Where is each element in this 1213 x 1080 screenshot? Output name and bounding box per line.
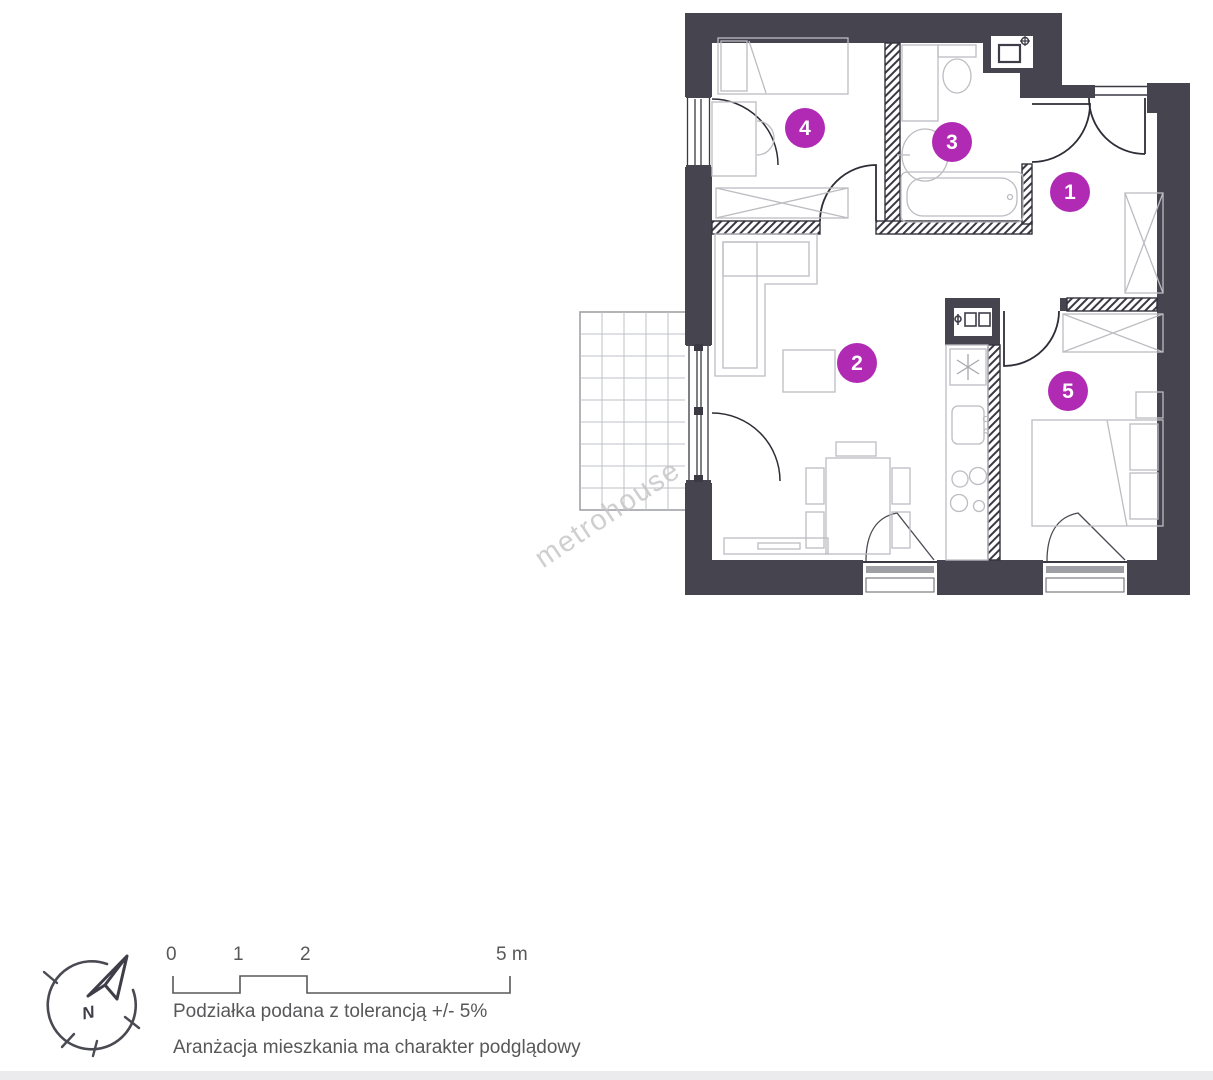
scale-tick-1: 1	[233, 944, 244, 966]
floor-plan-page: N 1 2 3 4 5 metrohouse 0 1 2 5 m Podział…	[0, 0, 1213, 1080]
arrangement-note: Aranżacja mieszkania ma charakter podglą…	[173, 1037, 581, 1059]
desk-chair-icon	[712, 102, 774, 176]
windows	[685, 83, 1147, 595]
compass-rose: N	[44, 956, 139, 1056]
bedroom5-furniture	[1032, 314, 1163, 526]
bathtub-icon	[901, 172, 1023, 222]
entrance-threshold	[1095, 83, 1147, 98]
stove-icon	[951, 468, 987, 512]
swing-window-room4	[712, 99, 778, 165]
window-room4	[685, 94, 712, 169]
scale-tick-2: 2	[300, 944, 311, 966]
scale-tick-end: 5 m	[496, 944, 528, 966]
window-living-room	[863, 560, 937, 595]
room-badge-5: 5	[1048, 371, 1088, 411]
floor-plan-drawing: N	[0, 0, 1213, 1080]
swing-window-bedroom5	[1047, 513, 1125, 561]
door-bathroom	[1032, 104, 1090, 162]
tolerance-note: Podziałka podana z tolerancją +/- 5%	[173, 1001, 487, 1023]
tv-sideboard-icon	[724, 538, 828, 554]
kitchen-sink-icon	[952, 406, 989, 444]
scale-bar	[173, 976, 510, 993]
bed-double-icon	[1032, 420, 1163, 526]
door-entrance	[1089, 98, 1145, 154]
bathroom-cabinet	[902, 45, 938, 121]
kitchen-counter	[946, 345, 988, 560]
bottom-edge-strip	[0, 1071, 1213, 1080]
utility-niche	[991, 36, 1033, 68]
living-room-furniture	[715, 234, 910, 554]
swing-balcony-door	[712, 413, 780, 481]
kitchen-shaft-niche	[954, 308, 992, 336]
bed-single-icon	[718, 38, 848, 94]
corner-sofa-icon	[715, 234, 817, 376]
toilet-icon	[938, 45, 976, 93]
dining-table-icon	[806, 442, 910, 554]
coffee-table-icon	[783, 350, 835, 392]
wardrobe-icon	[1063, 314, 1163, 352]
room-badge-2: 2	[837, 343, 877, 383]
fridge-icon	[950, 349, 986, 385]
scale-tick-0: 0	[166, 944, 177, 966]
door-room5	[1004, 311, 1059, 366]
compass-north-label: N	[80, 1002, 97, 1023]
room-badge-4: 4	[785, 108, 825, 148]
room-badge-3: 3	[932, 122, 972, 162]
door-swings	[712, 98, 1145, 561]
window-bedroom5	[1043, 560, 1127, 595]
room-badge-1: 1	[1050, 172, 1090, 212]
kitchen-furniture	[946, 345, 989, 560]
wardrobe-icon	[716, 188, 848, 218]
